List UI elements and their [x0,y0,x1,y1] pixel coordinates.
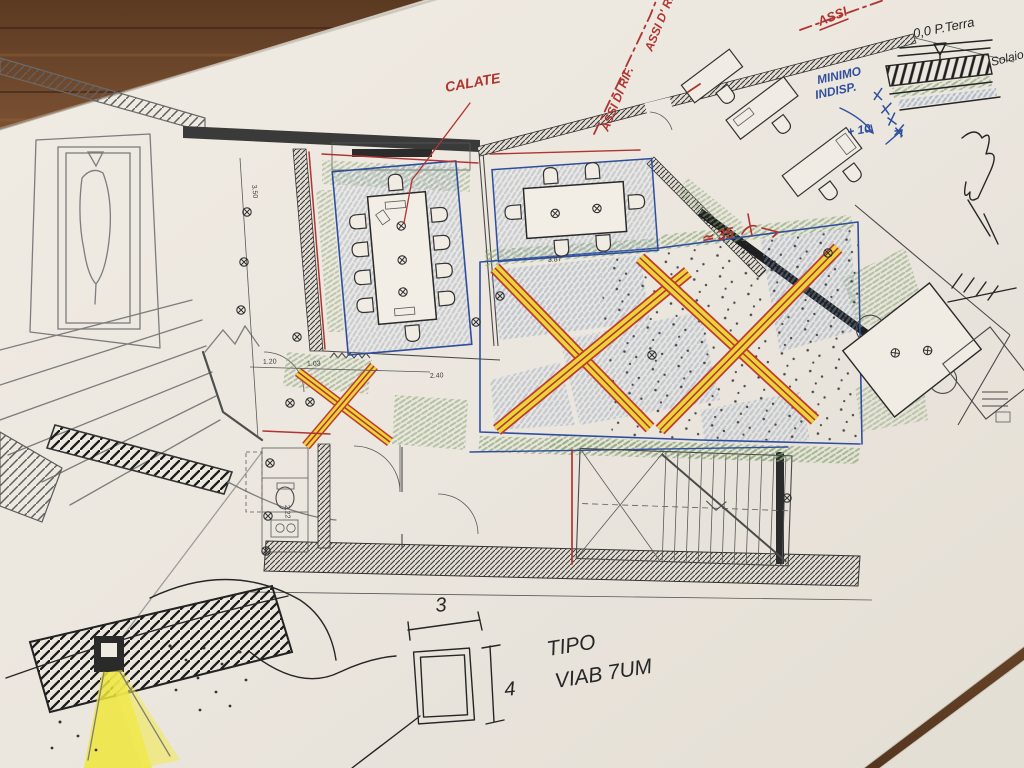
col-height-label: 4 [503,678,516,701]
meeting-table [523,182,626,239]
dim-3-50: 3.50 [250,184,258,198]
dim-3-87: 3.87 [548,256,562,264]
photo-of-floor-plan-sketch: 3.50 3.87 1.20 1.03 2.40 2.22 ASSI DI RI… [0,0,1024,768]
col-width-label: 3 [434,594,447,617]
conference-table [368,192,437,325]
conference-room [332,161,472,355]
meeting-room [492,159,658,262]
dim-1-20: 1.20 [263,359,277,366]
dim-1-03: 1.03 [307,361,321,368]
bath-partition-wall [318,444,330,548]
dim-2-40: 2.40 [430,372,444,380]
dim-2-22: 2.22 [283,505,291,519]
scene-canvas: 3.50 3.87 1.20 1.03 2.40 2.22 ASSI DI RI… [0,0,1024,768]
